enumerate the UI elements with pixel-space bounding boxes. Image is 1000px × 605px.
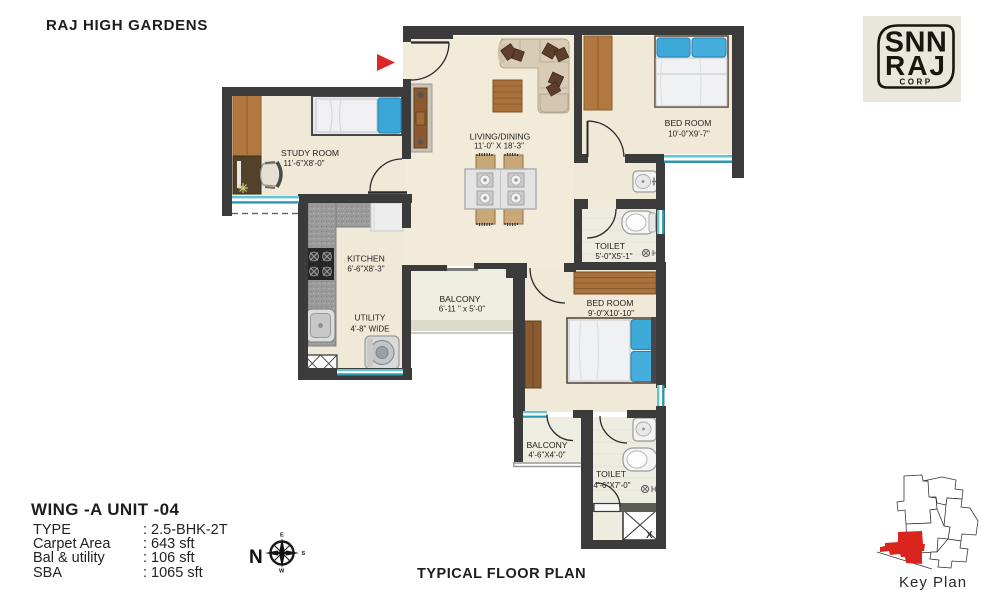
svg-text:11'-0" X 18'-3": 11'-0" X 18'-3" bbox=[474, 142, 524, 151]
svg-text:5'-0"X5'-1": 5'-0"X5'-1" bbox=[595, 252, 632, 261]
svg-text:RAJ HIGH GARDENS: RAJ HIGH GARDENS bbox=[46, 17, 208, 34]
svg-text:Key Plan: Key Plan bbox=[899, 574, 967, 591]
svg-text:10'-0"X9'-7": 10'-0"X9'-7" bbox=[668, 130, 710, 139]
svg-text:: 1065 sft: : 1065 sft bbox=[143, 565, 203, 581]
svg-text:6'-11 " x 5'-0": 6'-11 " x 5'-0" bbox=[439, 305, 486, 314]
svg-text:X: X bbox=[646, 530, 653, 541]
svg-text:BED ROOM: BED ROOM bbox=[665, 118, 712, 128]
svg-text:UTILITY: UTILITY bbox=[355, 313, 386, 323]
svg-text:KITCHEN: KITCHEN bbox=[347, 254, 385, 264]
svg-text:BALCONY: BALCONY bbox=[439, 294, 480, 304]
svg-text:STUDY ROOM: STUDY ROOM bbox=[281, 148, 339, 158]
svg-text:9'-0"X10'-10": 9'-0"X10'-10" bbox=[588, 309, 634, 318]
svg-text:N: N bbox=[249, 547, 263, 568]
svg-text:4'-8" WIDE: 4'-8" WIDE bbox=[350, 325, 389, 334]
svg-text:SBA: SBA bbox=[33, 565, 62, 581]
svg-text:E: E bbox=[280, 533, 284, 539]
svg-text:W: W bbox=[279, 569, 285, 575]
svg-text:6'-6"X8'-3": 6'-6"X8'-3" bbox=[347, 265, 384, 274]
svg-text:LIVING/DINING: LIVING/DINING bbox=[470, 132, 531, 142]
svg-text:4'-6"X7'-0": 4'-6"X7'-0" bbox=[593, 481, 630, 490]
svg-text:4'-6"X4'-0": 4'-6"X4'-0" bbox=[528, 451, 565, 460]
svg-text:TYPICAL FLOOR PLAN: TYPICAL FLOOR PLAN bbox=[417, 566, 586, 582]
svg-text:BED ROOM: BED ROOM bbox=[587, 298, 634, 308]
svg-text:TOILET: TOILET bbox=[595, 241, 626, 251]
svg-text:Bal & utility: Bal & utility bbox=[33, 550, 105, 566]
svg-text:RAJ: RAJ bbox=[885, 50, 947, 81]
svg-text:CORP: CORP bbox=[899, 78, 932, 87]
svg-text:WING -A UNIT -04: WING -A UNIT -04 bbox=[31, 500, 180, 519]
svg-text:TOILET: TOILET bbox=[596, 469, 627, 479]
svg-text:BALCONY: BALCONY bbox=[526, 440, 567, 450]
svg-text:S: S bbox=[302, 551, 306, 557]
svg-text:11'-6"X8'-0": 11'-6"X8'-0" bbox=[283, 159, 324, 168]
svg-text:: 106 sft: : 106 sft bbox=[143, 550, 195, 566]
